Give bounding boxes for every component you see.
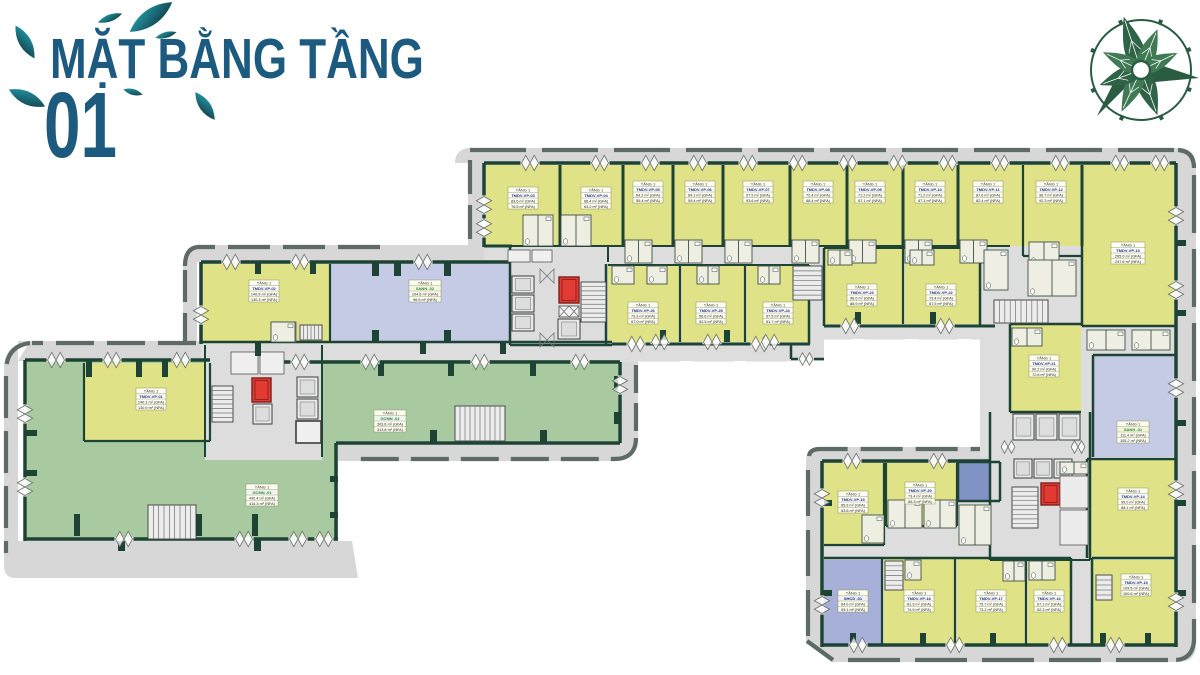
svg-text:TMDV-VP-06: TMDV-VP-06 [688,187,712,192]
svg-text:73.4 m² (GFA): 73.4 m² (GFA) [908,494,933,498]
svg-text:95.0 m² (GFA): 95.0 m² (GFA) [1121,500,1146,504]
svg-text:TMDV-VP-16: TMDV-VP-16 [1037,596,1061,601]
svg-text:TẦNG 1: TẦNG 1 [934,284,949,289]
svg-text:TMDV-VP-23: TMDV-VP-23 [850,290,874,295]
svg-text:GCMN -01: GCMN -01 [252,490,272,495]
svg-text:TẦNG 1: TẦNG 1 [1129,574,1144,579]
svg-text:81.3 m² (GFA): 81.3 m² (GFA) [907,602,932,606]
svg-text:303.6 m² (GFA): 303.6 m² (GFA) [377,422,404,426]
svg-text:59.4 m² (NFA): 59.4 m² (NFA) [636,199,661,203]
svg-text:414.3 m² (NFA): 414.3 m² (NFA) [249,502,276,506]
svg-text:265.0 m² (GFA): 265.0 m² (GFA) [1115,254,1142,258]
svg-text:63.2 m² (NFA): 63.2 m² (NFA) [584,205,609,209]
svg-text:GCMN -02: GCMN -02 [380,416,400,421]
svg-text:111.4 m² (GFA): 111.4 m² (GFA) [1120,433,1146,437]
svg-text:59.4 m² (NFA): 59.4 m² (NFA) [688,199,713,203]
svg-text:TẦNG 1: TẦNG 1 [636,302,651,307]
svg-text:TẦNG 1: TẦNG 1 [418,280,433,285]
svg-text:SANH -02: SANH -02 [416,286,435,291]
svg-text:TẦNG 1: TẦNG 1 [704,302,719,307]
svg-text:83.6 m² (GFA): 83.6 m² (GFA) [511,199,536,203]
svg-text:SANH -01: SANH -01 [1124,427,1143,432]
svg-text:SHCD -01: SHCD -01 [844,596,863,601]
svg-text:TẦNG 1: TẦNG 1 [1042,590,1057,595]
svg-text:TMDV-VP-18: TMDV-VP-18 [907,596,931,601]
svg-text:130.9 m² (NFA): 130.9 m² (NFA) [138,406,165,410]
svg-text:TẦNG 1: TẦNG 1 [913,482,928,487]
svg-text:TMDV-VP-17: TMDV-VP-17 [979,596,1003,601]
svg-text:96.5 m² (NFA): 96.5 m² (NFA) [413,298,438,302]
svg-text:TẦNG 1: TẦNG 1 [589,187,604,192]
svg-text:TẦNG 1: TẦNG 1 [144,388,159,393]
svg-text:97.5 m² (GFA): 97.5 m² (GFA) [746,193,771,197]
svg-text:88.9 m² (NFA): 88.9 m² (NFA) [850,302,875,306]
svg-text:TẦNG 1: TẦNG 1 [846,590,861,595]
svg-text:TẦNG 1: TẦNG 1 [846,491,861,496]
svg-text:105.2 m² (NFA): 105.2 m² (NFA) [1120,439,1147,443]
svg-text:82.4 m² (NFA): 82.4 m² (NFA) [976,199,1001,203]
svg-text:67.1 m² (NFA): 67.1 m² (NFA) [858,199,883,203]
svg-text:73.4 m² (GFA): 73.4 m² (GFA) [929,296,954,300]
svg-text:TẦNG 1: TẦNG 1 [383,410,398,415]
svg-text:TẦNG 1: TẦNG 1 [693,181,708,186]
svg-text:TẦNG 1: TẦNG 1 [751,181,766,186]
svg-text:92.3 m² (NFA): 92.3 m² (NFA) [1039,199,1064,203]
svg-text:73.2 m² (NFA): 73.2 m² (NFA) [979,608,1004,612]
svg-text:TẦNG 1: TẦNG 1 [1037,355,1052,360]
svg-text:TẦNG 1: TẦNG 1 [1044,181,1059,186]
svg-text:67.5 m² (GFA): 67.5 m² (GFA) [766,314,791,318]
svg-text:67.1 m² (NFA): 67.1 m² (NFA) [918,199,943,203]
svg-text:TẦNG 1: TẦNG 1 [516,187,531,192]
svg-text:109.5 m² (GFA): 109.5 m² (GFA) [1123,586,1150,590]
svg-text:104.6 m² (GFA): 104.6 m² (GFA) [412,292,439,296]
svg-text:TMDV-VP-14: TMDV-VP-14 [1121,494,1145,499]
svg-text:96.0 m² (GFA): 96.0 m² (GFA) [850,296,875,300]
svg-text:TẦNG 1: TẦNG 1 [984,590,999,595]
svg-text:68.4 m² (NFA): 68.4 m² (NFA) [806,199,831,203]
svg-text:140.3 m² (GFA): 140.3 m² (GFA) [138,400,165,404]
svg-text:TMDV-VP-13: TMDV-VP-13 [1116,248,1140,253]
svg-text:TMDV-VP-11: TMDV-VP-11 [976,187,1000,192]
svg-text:TẦNG 1: TẦNG 1 [641,181,656,186]
svg-text:TMDV-VP-25: TMDV-VP-25 [699,308,723,313]
svg-text:442.4 m² (GFA): 442.4 m² (GFA) [249,496,276,500]
svg-text:64.0 m² (GFA): 64.0 m² (GFA) [841,602,866,606]
svg-text:140.9 m² (GFA): 140.9 m² (GFA) [251,292,278,296]
svg-text:TẦNG 1: TẦNG 1 [855,284,870,289]
svg-text:63.6 m² (NFA): 63.6 m² (NFA) [841,509,866,513]
svg-text:73.3 m² (GFA): 73.3 m² (GFA) [631,314,656,318]
svg-text:TMDV-VP-22: TMDV-VP-22 [929,290,953,295]
svg-text:TMDV-VP-15: TMDV-VP-15 [1124,580,1148,585]
svg-text:TẦNG 1: TẦNG 1 [912,590,927,595]
svg-text:TẦNG 1: TẦNG 1 [1126,488,1141,493]
svg-text:72.6 m² (NFA): 72.6 m² (NFA) [1032,373,1057,377]
svg-text:TMDV-VP-04: TMDV-VP-04 [584,193,608,198]
svg-text:67.5 m² (NFA): 67.5 m² (NFA) [929,302,954,306]
svg-text:TẦNG 1: TẦNG 1 [811,181,826,186]
svg-text:TMDV-VP-20: TMDV-VP-20 [908,488,932,493]
svg-text:90.2 m² (GFA): 90.2 m² (GFA) [1032,367,1057,371]
svg-text:TMDV-VP-07: TMDV-VP-07 [746,187,770,192]
svg-text:75.7 m² (GFA): 75.7 m² (GFA) [979,602,1004,606]
svg-text:TMDV-VP-21: TMDV-VP-21 [1032,361,1056,366]
svg-text:313.8 m² (NFA): 313.8 m² (NFA) [377,428,404,432]
svg-text:TMDV-VP-19: TMDV-VP-19 [841,497,865,502]
svg-text:TẦNG 1: TẦNG 1 [1126,421,1141,426]
svg-text:61.7 m² (NFA): 61.7 m² (NFA) [766,320,791,324]
svg-text:TMDV-VP-03: TMDV-VP-03 [511,193,535,198]
svg-text:64.1 m² (GFA): 64.1 m² (GFA) [688,193,713,197]
svg-text:67.0 m² (NFA): 67.0 m² (NFA) [631,320,656,324]
svg-text:TẦNG 1: TẦNG 1 [923,181,938,186]
svg-text:TMDV-VP-02: TMDV-VP-02 [252,286,276,291]
svg-text:130.3 m² (NFA): 130.3 m² (NFA) [251,298,278,302]
svg-text:TMDV-VP-26: TMDV-VP-26 [631,308,655,313]
svg-text:65.9 m² (GFA): 65.9 m² (GFA) [841,503,866,507]
svg-text:71.2 m² (GFA): 71.2 m² (GFA) [918,193,943,197]
svg-text:TMDV-VP-08: TMDV-VP-08 [806,187,830,192]
svg-text:52.5 m² (NFA): 52.5 m² (NFA) [699,320,724,324]
svg-text:TMDV-VP-05: TMDV-VP-05 [636,187,660,192]
svg-text:TẦNG 1: TẦNG 1 [1121,242,1136,247]
svg-text:68.4 m² (GFA): 68.4 m² (GFA) [584,199,609,203]
svg-text:TMDV-VP-24: TMDV-VP-24 [766,308,790,313]
svg-text:87.6 m² (GFA): 87.6 m² (GFA) [976,193,1001,197]
svg-text:100.6 m² (NFA): 100.6 m² (NFA) [1123,592,1150,596]
svg-text:247.6 m² (NFA): 247.6 m² (NFA) [1115,260,1142,264]
svg-text:56.6 m² (GFA): 56.6 m² (GFA) [699,314,724,318]
svg-text:59.1 m² (NFA): 59.1 m² (NFA) [841,608,866,612]
svg-text:93.6 m² (NFA): 93.6 m² (NFA) [746,199,771,203]
svg-text:71.2 m² (GFA): 71.2 m² (GFA) [858,193,883,197]
svg-text:65.3 m² (NFA): 65.3 m² (NFA) [908,500,933,504]
svg-text:64.2 m² (GFA): 64.2 m² (GFA) [636,193,661,197]
svg-text:TẦNG 1: TẦNG 1 [255,484,270,489]
svg-text:TẦNG 1: TẦNG 1 [981,181,996,186]
svg-text:96.7 m² (GFA): 96.7 m² (GFA) [1039,193,1064,197]
svg-text:TMDV-VP-12: TMDV-VP-12 [1039,187,1063,192]
svg-text:TMDV-VP-09: TMDV-VP-09 [858,187,882,192]
svg-text:TMDV-VP-01: TMDV-VP-01 [139,394,163,399]
svg-text:TẦNG 1: TẦNG 1 [863,181,878,186]
svg-text:01: 01 [44,74,117,178]
svg-text:TMDV-VP-10: TMDV-VP-10 [918,187,942,192]
svg-text:74.9 m² (NFA): 74.9 m² (NFA) [907,608,932,612]
svg-text:76.5 m² (NFA): 76.5 m² (NFA) [511,205,536,209]
svg-text:TẦNG 1: TẦNG 1 [771,302,786,307]
svg-text:62.3 m² (NFA): 62.3 m² (NFA) [1037,608,1062,612]
svg-text:67.1 m² (GFA): 67.1 m² (GFA) [1037,602,1062,606]
svg-text:TẦNG 1: TẦNG 1 [257,280,272,285]
svg-text:88.1 m² (NFA): 88.1 m² (NFA) [1121,506,1146,510]
svg-text:72.4 m² (GFA): 72.4 m² (GFA) [806,193,831,197]
